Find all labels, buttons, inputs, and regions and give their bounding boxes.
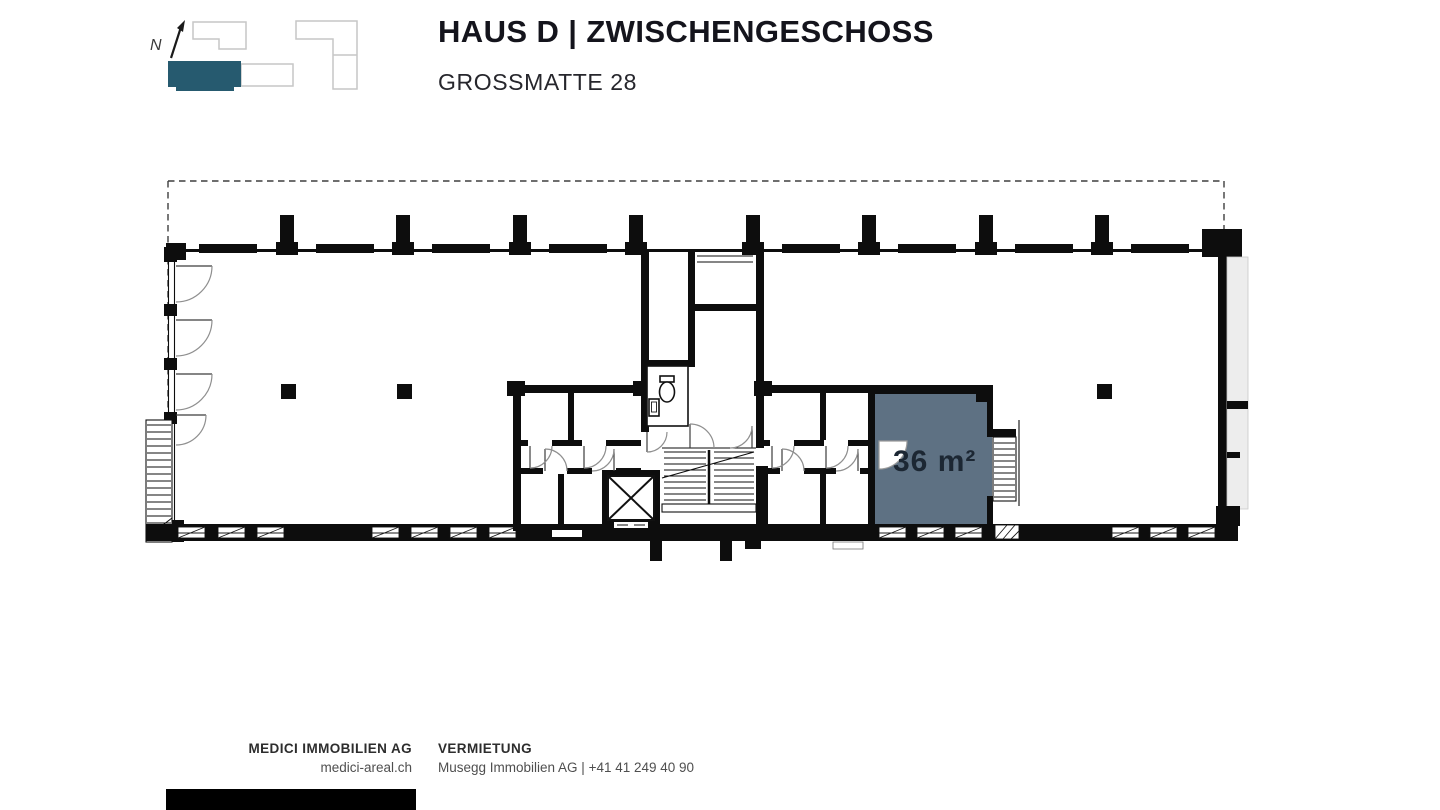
core-stairs (662, 448, 756, 512)
company-name: MEDICI IMMOBILIEN AG (140, 741, 412, 756)
company-website: medici-areal.ch (140, 760, 412, 775)
unit-area-label: 36 m² (893, 445, 976, 478)
rental-contact: Musegg Immobilien AG | +41 41 249 40 90 (438, 760, 694, 775)
site-plan: N (140, 6, 390, 110)
north-label: N (150, 37, 162, 54)
wc-toilet-icon (660, 382, 675, 402)
logo-bar (166, 789, 416, 810)
dashed-boundary (168, 181, 1224, 420)
plan-sheet: HAUS D | ZWISCHENGESCHOSS GROSSMATTE 28 … (0, 0, 1440, 810)
page-subtitle: GROSSMATTE 28 (438, 69, 637, 96)
wc-sink-icon (649, 399, 659, 416)
wc-cistern-icon (660, 376, 674, 382)
top-wall (166, 215, 1242, 260)
right-wall (1216, 256, 1248, 526)
wc-room (647, 366, 688, 426)
elevator (602, 470, 660, 528)
footer-rental-block: VERMIETUNG Musegg Immobilien AG | +41 41… (438, 741, 694, 775)
core (507, 252, 876, 531)
page-title: HAUS D | ZWISCHENGESCHOSS (438, 14, 934, 50)
left-wall-door-swings (176, 266, 212, 445)
footer-company-block: MEDICI IMMOBILIEN AG medici-areal.ch (140, 741, 412, 775)
exterior-stair-right (993, 420, 1019, 539)
north-arrow-icon: N (150, 20, 185, 58)
bottom-wall (146, 524, 1238, 561)
rental-heading: VERMIETUNG (438, 741, 694, 756)
balcony-strip (1227, 257, 1248, 509)
highlighted-unit: 36 m² (875, 385, 1019, 539)
floor-plan: 36 m² (140, 160, 1260, 570)
site-building-highlight (168, 61, 241, 91)
exterior-stair-left (146, 420, 172, 542)
